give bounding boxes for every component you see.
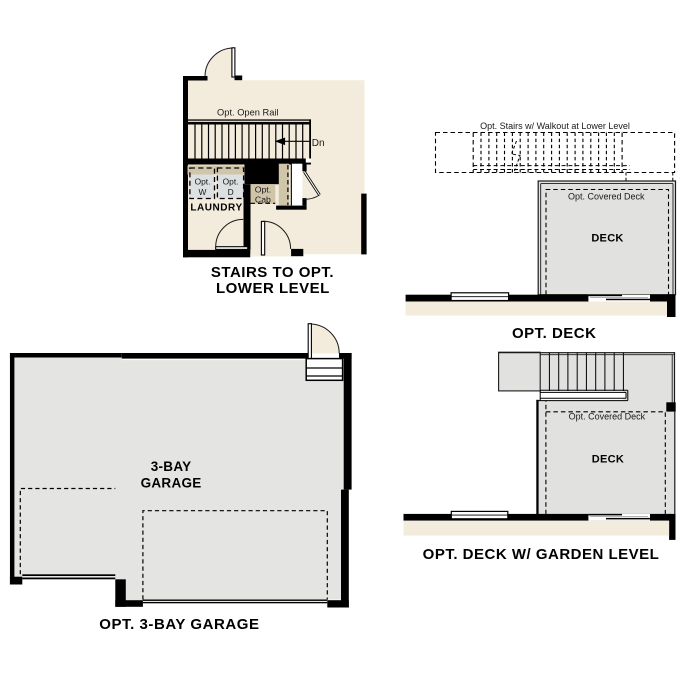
svg-text:Opt. Covered Deck: Opt. Covered Deck [568,191,645,201]
svg-text:W: W [199,187,207,197]
svg-text:OPT. 3-BAY GARAGE: OPT. 3-BAY GARAGE [99,616,259,633]
svg-text:LOWER LEVEL: LOWER LEVEL [216,280,330,297]
svg-text:Opt.: Opt. [195,177,211,187]
svg-text:LAUNDRY: LAUNDRY [190,203,242,214]
svg-text:Opt. Covered Deck: Opt. Covered Deck [569,412,646,422]
svg-text:OPT. DECK W/ GARDEN LEVEL: OPT. DECK W/ GARDEN LEVEL [423,546,660,563]
svg-text:Opt. Open Rail: Opt. Open Rail [217,107,279,117]
svg-text:DECK: DECK [592,454,624,466]
svg-text:STAIRS TO OPT.: STAIRS TO OPT. [211,264,334,281]
svg-text:D: D [228,187,234,197]
svg-text:Opt. Stairs w/ Walkout at Lowe: Opt. Stairs w/ Walkout at Lower Level [480,121,630,131]
svg-text:Opt.: Opt. [255,184,271,194]
svg-text:Cab: Cab [255,194,271,204]
svg-text:Opt.: Opt. [223,177,239,187]
svg-text:OPT. DECK: OPT. DECK [512,325,597,342]
svg-text:DECK: DECK [591,233,623,245]
svg-text:GARAGE: GARAGE [141,476,202,491]
svg-text:Dn: Dn [312,138,325,149]
svg-text:3-BAY: 3-BAY [151,459,192,474]
